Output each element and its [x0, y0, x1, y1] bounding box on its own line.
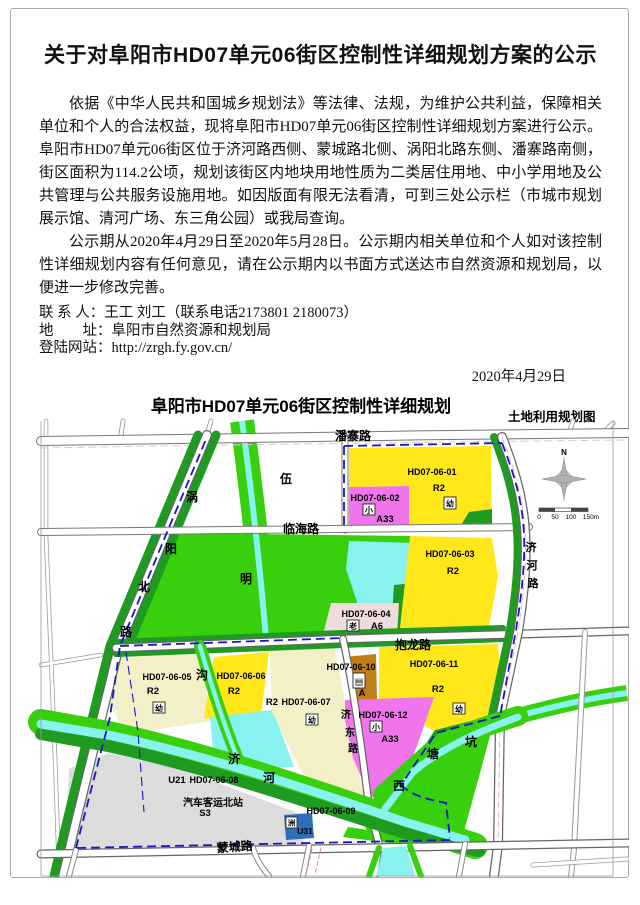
svg-text:洲: 洲	[288, 819, 296, 828]
road-label-baolong: 抱龙路	[395, 637, 432, 652]
block-11-kindergarten-badge: 幼	[453, 703, 465, 714]
block-08-facility-code: S3	[199, 808, 211, 819]
svg-text:小: 小	[371, 722, 380, 732]
block-08-facility: 汽车客运北站	[183, 796, 243, 809]
contact-block: 联 系 人：王工 刘工（联系电话2173801 2180073） 地 址：阜阳市…	[39, 305, 602, 358]
contact-line: 联 系 人：王工 刘工（联系电话2173801 2180073）	[39, 305, 602, 323]
block-03-code: HD07-06-03	[425, 549, 474, 559]
u31-code: U31	[297, 826, 313, 836]
block-07-use: R2	[266, 697, 278, 708]
svg-text:阳: 阳	[165, 541, 177, 556]
scale-tick-100: 100	[566, 514, 577, 521]
notice-date: 2020年4月29日	[39, 365, 602, 386]
notice-body: 依据《中华人民共和国城乡规划法》等法律、法规，为维护公共利益，保障相关单位和个人…	[39, 93, 602, 300]
svg-text:涡: 涡	[186, 489, 198, 504]
scale-bar: 0 50 100 150m	[537, 508, 599, 521]
svg-text:幼: 幼	[308, 715, 316, 725]
svg-text:幼: 幼	[446, 499, 454, 509]
block-11-code: HD07-06-11	[410, 659, 459, 669]
scale-tick-150: 150m	[583, 514, 599, 521]
road-label-linhai: 临海路	[283, 521, 320, 536]
planning-map: N 0 50 100 150m 潘寨路 临海路 抱龙路 蒙城路 涡 阳 北 路	[13, 417, 629, 877]
svg-text:东: 东	[345, 726, 355, 739]
water-label-ming: 明	[240, 572, 252, 586]
water-label-tang: 塘	[427, 746, 439, 761]
water-label-wu: 伍	[279, 471, 292, 486]
block-07-kindergarten-badge: 幼	[306, 714, 318, 725]
svg-text:路: 路	[528, 576, 540, 590]
block-08-use: U21	[168, 775, 186, 786]
block-10-use: A	[359, 688, 366, 699]
svg-text:幼: 幼	[155, 703, 163, 713]
block-01-kindergarten-badge: 幼	[444, 497, 456, 509]
block-12-primary-badge: 小	[370, 721, 382, 732]
notice-paragraph-1: 依据《中华人民共和国城乡规划法》等法律、法规，为维护公共利益，保障相关单位和个人…	[39, 93, 602, 231]
svg-text:小: 小	[364, 505, 373, 515]
block-03-use: R2	[447, 566, 459, 577]
svg-text:老: 老	[348, 621, 357, 631]
road-label-panzhai: 潘寨路	[335, 428, 372, 443]
water-label-keng: 坑	[465, 734, 477, 749]
block-04-use: A6	[371, 621, 383, 632]
road-label-mengcheng: 蒙城路	[216, 838, 254, 856]
scale-tick-50: 50	[551, 514, 559, 521]
block-06-code: HD07-06-06	[216, 671, 265, 681]
document-page: 关于对阜阳市HD07单元06街区控制性详细规划方案的公示 依据《中华人民共和国城…	[10, 8, 629, 878]
block-04-elderly-badge: 老	[347, 620, 359, 631]
block-10-badge-glyph: ▤	[355, 677, 364, 687]
compass-rose-icon: N	[542, 448, 586, 501]
notice-paragraph-2: 公示期从2020年4月29日至2020年5月28日。公示期内相关单位和个人如对该…	[39, 231, 602, 300]
block-08-code: HD07-06-08	[189, 775, 238, 785]
svg-text:路: 路	[120, 624, 133, 639]
block-05-code: HD07-06-05	[142, 672, 191, 682]
block-06-use: R2	[228, 686, 240, 697]
notice-title: 关于对阜阳市HD07单元06街区控制性详细规划方案的公示	[39, 39, 602, 69]
notice-section: 关于对阜阳市HD07单元06街区控制性详细规划方案的公示 依据《中华人民共和国城…	[39, 39, 602, 386]
block-07-code: HD07-06-07	[281, 697, 330, 707]
svg-text:河: 河	[527, 558, 538, 572]
water-label-xi: 西	[393, 779, 405, 793]
block-12-use: A33	[381, 734, 398, 745]
address-line: 地 址：阜阳市自然资源和规划局	[39, 323, 602, 341]
svg-text:北: 北	[138, 579, 150, 594]
scale-tick-0: 0	[537, 514, 541, 521]
road-label-jihe: 济 河 路	[526, 540, 540, 590]
block-02-primary-badge: 小	[363, 504, 375, 515]
svg-text:幼: 幼	[455, 704, 463, 714]
svg-text:路: 路	[348, 742, 359, 755]
block-01-code: HD07-06-01	[407, 467, 456, 477]
block-02-code: HD07-06-02	[350, 493, 399, 503]
u31-badge: 洲	[286, 817, 297, 828]
block-11-use: R2	[432, 684, 444, 695]
block-01-use: R2	[433, 483, 445, 494]
svg-text:济: 济	[341, 708, 352, 721]
website-line: 登陆网站：http://zrgh.fy.gov.cn/	[39, 340, 602, 358]
block-10-facility-badge: ▤	[353, 673, 365, 688]
svg-text:济: 济	[526, 540, 538, 554]
block-09-code: HD07-06-09	[306, 806, 355, 816]
water-label-he: 河	[262, 770, 275, 785]
block-05-use: R2	[147, 686, 159, 697]
water-label-gou: 沟	[196, 667, 208, 682]
block-12-code: HD07-06-12	[358, 710, 407, 720]
block-10-code: HD07-06-10	[326, 662, 375, 672]
block-02-use: A33	[376, 514, 393, 525]
compass-north-label: N	[561, 448, 567, 457]
block-04-code: HD07-06-04	[341, 609, 390, 619]
water-label-ji: 济	[228, 751, 241, 766]
block-05-kindergarten-badge: 幼	[153, 702, 165, 713]
map-title: 阜阳市HD07单元06街区控制性详细规划	[101, 392, 501, 417]
